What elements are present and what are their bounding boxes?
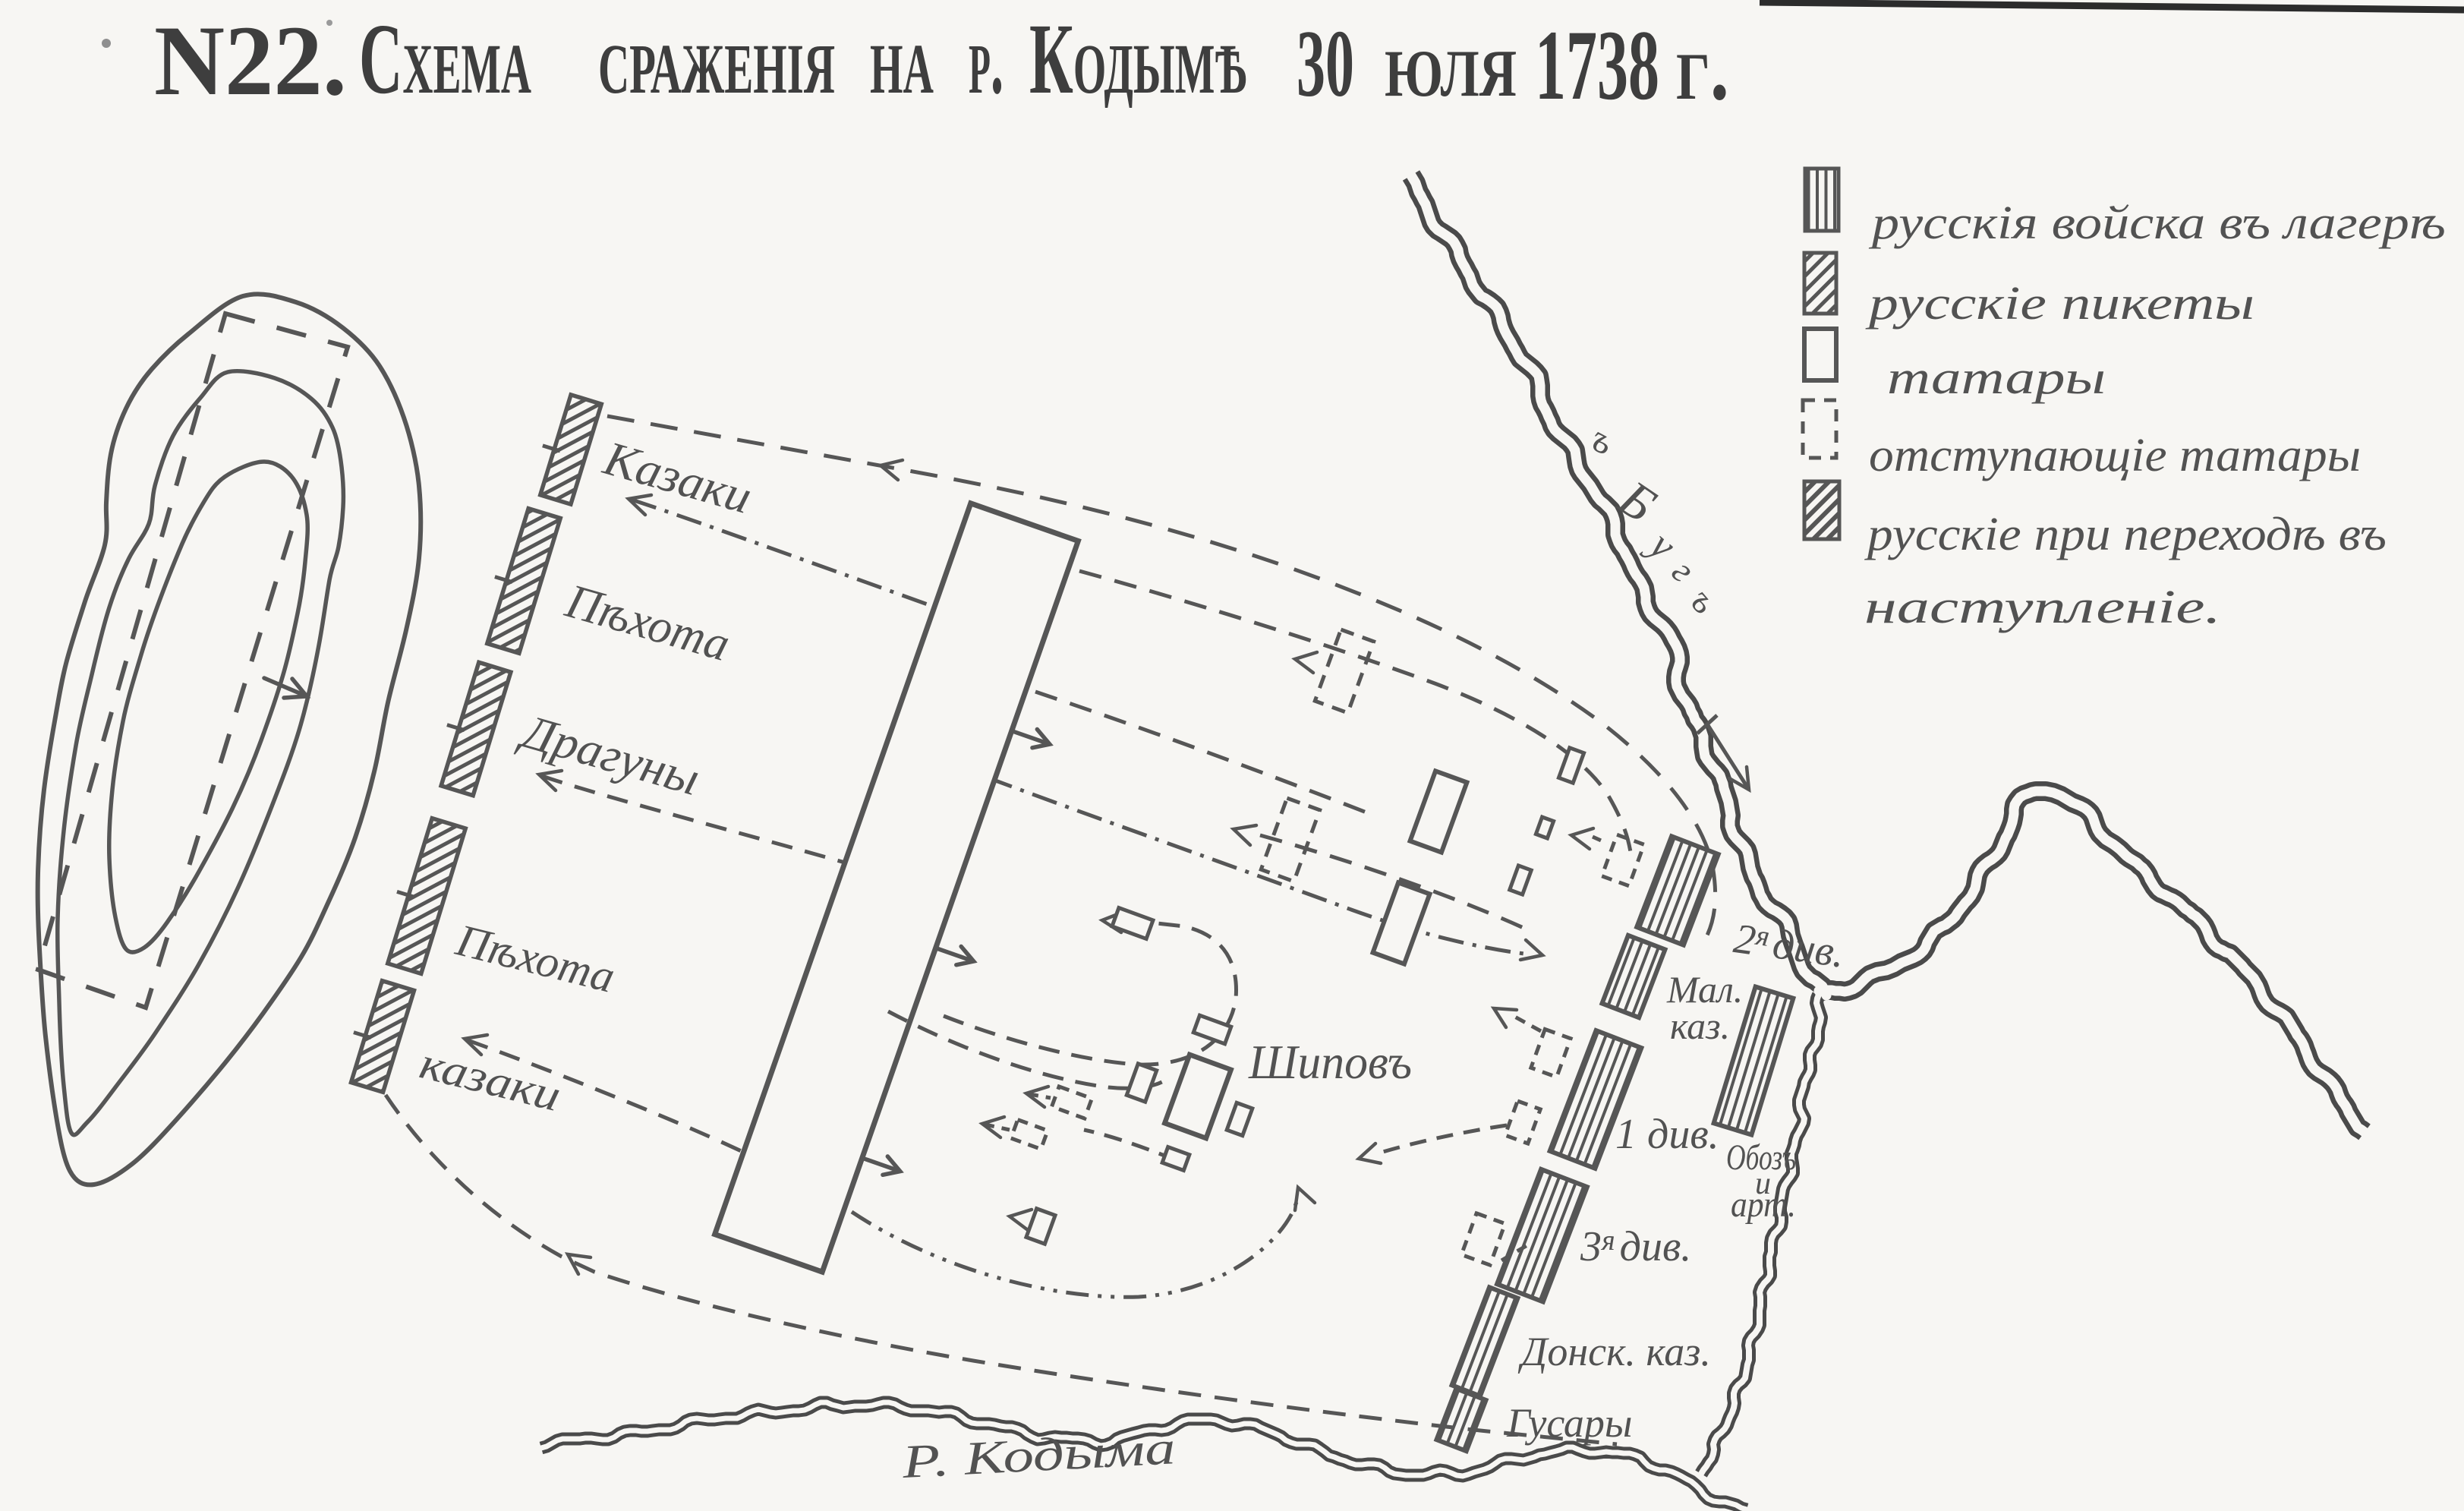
svg-text:русскіе при переходѣ въ: русскіе при переходѣ въ [1864,509,2387,560]
svg-text:отступающіе татары: отступающіе татары [1869,430,2361,481]
svg-text:юля: юля [1385,11,1517,117]
svg-text:3ядив.: 3ядив. [1580,1223,1691,1270]
svg-text:русскія войска въ лагерѣ: русскія войска въ лагерѣ [1868,197,2446,249]
svg-text:каз.: каз. [1670,1005,1730,1047]
svg-text:1738: 1738 [1535,9,1659,121]
svg-text:Гусары: Гусары [1506,1400,1633,1446]
svg-text:русскіе пикеты: русскіе пикеты [1865,278,2254,330]
svg-text:30: 30 [1297,11,1354,117]
svg-text:N22.: N22. [154,5,347,116]
svg-text:Шиповъ: Шиповъ [1248,1035,1412,1089]
svg-text:Донск. каз.: Донск. каз. [1517,1329,1711,1374]
svg-text:Кодымѣ: Кодымѣ [1029,2,1247,115]
svg-text:сраженія: сраженія [598,2,835,115]
svg-text:г.: г. [1676,14,1729,120]
svg-text:наступленіе.: наступленіе. [1864,582,2221,633]
svg-text:Схема: Схема [359,2,531,115]
svg-text:арт.: арт. [1731,1185,1796,1225]
svg-text:на: на [870,2,934,115]
svg-text:татары: татары [1887,352,2106,404]
svg-text:1 див.: 1 див. [1615,1111,1719,1158]
svg-text:р.: р. [969,2,1004,115]
